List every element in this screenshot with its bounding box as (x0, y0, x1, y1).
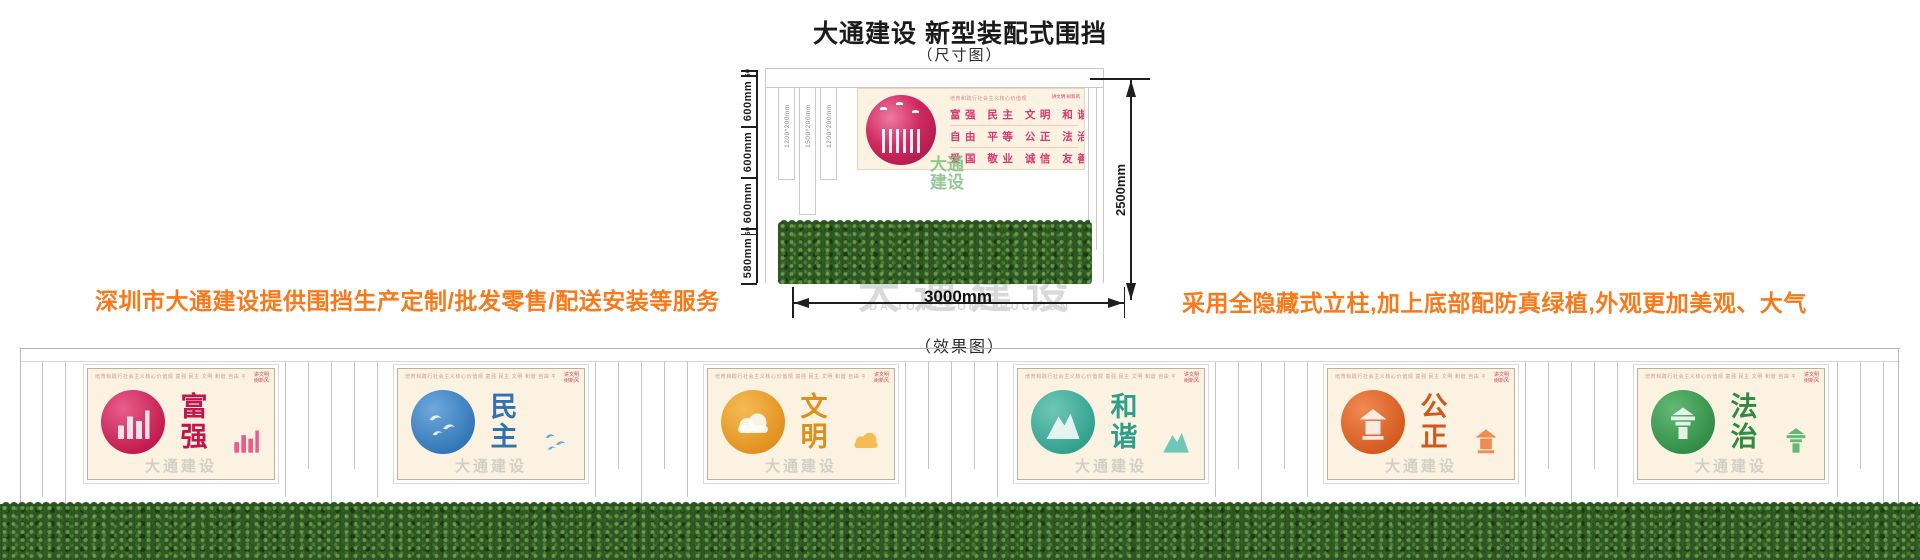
circle-motif-icon (425, 406, 461, 442)
fence-post-line (1238, 362, 1239, 469)
fence-post-line (1261, 362, 1262, 506)
panel-circle-art (1031, 390, 1095, 454)
panel-top-strip-text: 培育和践行社会主义核心价值观 富强 民主 文明 和谐 自由 平等 公正 法治 爱… (1645, 373, 1795, 380)
poster: 大通建设 新型装配式围挡 （尺寸图） 大通建设 DA TONG CONSTRUC… (0, 0, 1920, 560)
fence-post-line (687, 362, 688, 497)
artificial-grass-hedge (778, 222, 1092, 284)
panel-corner-mark: 讲文明树新风 (254, 373, 269, 384)
height-segments-dimension-line: 60600mm600mm600mm60580mm (756, 70, 758, 283)
panel-corner-mark: 讲文明树新风 (1804, 373, 1819, 384)
arrow-right-icon (1108, 298, 1123, 308)
panel-top-strip-text: 培育和践行社会主义核心价值观 富强 民主 文明 和谐 自由 平等 公正 法治 爱… (1025, 373, 1175, 380)
effect-panel: 培育和践行社会主义核心价值观 富强 民主 文明 和谐 自由 平等 公正 法治 爱… (1637, 368, 1825, 480)
panel-corner-mark: 讲文明树新风 (1494, 373, 1509, 384)
panel-motif-icon (1162, 427, 1190, 455)
panel-circle-art (101, 390, 165, 454)
panel-core-value-word: 民主 (486, 392, 522, 452)
panel-core-value-word: 和谐 (1106, 392, 1142, 452)
fence-post-line (1548, 362, 1549, 469)
effect-panel: 培育和践行社会主义核心价值观 富强 民主 文明 和谐 自由 平等 公正 法治 爱… (707, 368, 895, 480)
fence-post-line (997, 362, 998, 497)
effect-panel: 培育和践行社会主义核心价值观 富强 民主 文明 和谐 自由 平等 公正 法治 爱… (1327, 368, 1515, 480)
arrow-down-icon (1126, 283, 1136, 300)
panel-core-value-word: 公正 (1416, 392, 1452, 452)
fence-post-line (641, 362, 642, 506)
panel-motif-icon (232, 427, 260, 455)
dimension-extension-line (1124, 287, 1126, 318)
circle-motif-icon (1355, 406, 1391, 442)
fence-post-line (905, 362, 906, 497)
circle-motif-icon (1045, 406, 1081, 442)
panel-motif-icon (1782, 427, 1810, 455)
fence-rail-line (20, 361, 1900, 362)
fence-post-line (1883, 362, 1884, 506)
fence-post-line (1860, 362, 1861, 469)
panel-watermark: 大通建设 (1018, 455, 1204, 476)
fence-right-edge (1898, 348, 1899, 510)
fence-post-line (354, 362, 355, 469)
panel-circle-art (1651, 390, 1715, 454)
panel-core-value-word: 法治 (1726, 392, 1762, 452)
panel-watermark: 大通建设 (88, 455, 274, 476)
panel-watermark: 大通建设 (708, 455, 894, 476)
arrow-left-icon (794, 298, 809, 308)
panel-watermark: 大通建设 (398, 455, 584, 476)
panel-watermark: 大通建设 (1638, 455, 1824, 476)
arrow-up-icon (1126, 80, 1136, 97)
fence-post-line (331, 362, 332, 506)
panel-core-value-word: 文明 (796, 392, 832, 452)
panel-top-strip-text: 培育和践行社会主义核心价值观 富强 民主 文明 和谐 自由 平等 公正 法治 爱… (95, 373, 245, 380)
panel-motif-icon (1472, 427, 1500, 455)
effect-panel: 培育和践行社会主义核心价值观 富强 民主 文明 和谐 自由 平等 公正 法治 爱… (87, 368, 275, 480)
fence-post-line (1215, 362, 1216, 497)
total-width-label: 3000mm (858, 287, 1058, 307)
circle-motif-icon (115, 406, 151, 442)
fence-post-line (377, 362, 378, 497)
fence-post-line (951, 362, 952, 506)
fence-post-line (1594, 362, 1595, 469)
panel-motif-icon (542, 427, 570, 455)
fence-post-line (928, 362, 929, 469)
fence-post-line (285, 362, 286, 497)
panel-circle-art (721, 390, 785, 454)
fence-post-line (1617, 362, 1618, 497)
total-height-label: 2500mm (1112, 155, 1128, 225)
fence-post-line (1525, 362, 1526, 497)
circle-motif-icon (1665, 406, 1701, 442)
panel-top-strip-text: 培育和践行社会主义核心价值观 富强 民主 文明 和谐 自由 平等 公正 法治 爱… (1335, 373, 1485, 380)
fence-post-line (618, 362, 619, 469)
segment-dimension-label: 580mm (740, 223, 756, 293)
fence-post-line (42, 362, 43, 497)
panel-motif-icon (852, 427, 880, 455)
fence-post-line (308, 362, 309, 469)
effect-panel: 培育和践行社会主义核心价值观 富强 民主 文明 和谐 自由 平等 公正 法治 爱… (397, 368, 585, 480)
panel-top-strip-text: 培育和践行社会主义核心价值观 富强 民主 文明 和谐 自由 平等 公正 法治 爱… (405, 373, 555, 380)
panel-watermark: 大通建设 (1328, 455, 1514, 476)
panel-corner-mark: 讲文明树新风 (1184, 373, 1199, 384)
fence-post-line (1284, 362, 1285, 469)
panel-top-strip-text: 培育和践行社会主义核心价值观 富强 民主 文明 和谐 自由 平等 公正 法治 爱… (715, 373, 865, 380)
panel-circle-art (411, 390, 475, 454)
fence-top-edge (20, 348, 1900, 349)
green-brand-watermark: 大通 建设 (930, 156, 964, 192)
fence-post-line (1837, 362, 1838, 497)
dimension-extension-line (1090, 78, 1150, 80)
fence-post-line (65, 362, 66, 506)
fence-left-edge (20, 348, 21, 510)
panel-corner-mark: 讲文明树新风 (874, 373, 889, 384)
panel-circle-art (1341, 390, 1405, 454)
artificial-grass-hedge (0, 504, 1920, 560)
fence-post-line (974, 362, 975, 469)
fence-post-line (1571, 362, 1572, 506)
fence-post-line (664, 362, 665, 469)
fence-post-line (1307, 362, 1308, 497)
effect-panel: 培育和践行社会主义核心价值观 富强 民主 文明 和谐 自由 平等 公正 法治 爱… (1017, 368, 1205, 480)
panel-core-value-word: 富强 (176, 392, 212, 452)
panel-corner-mark: 讲文明树新风 (564, 373, 579, 384)
fence-post-line (595, 362, 596, 497)
total-height-dimension-line (1130, 79, 1132, 300)
circle-motif-icon (735, 406, 771, 442)
